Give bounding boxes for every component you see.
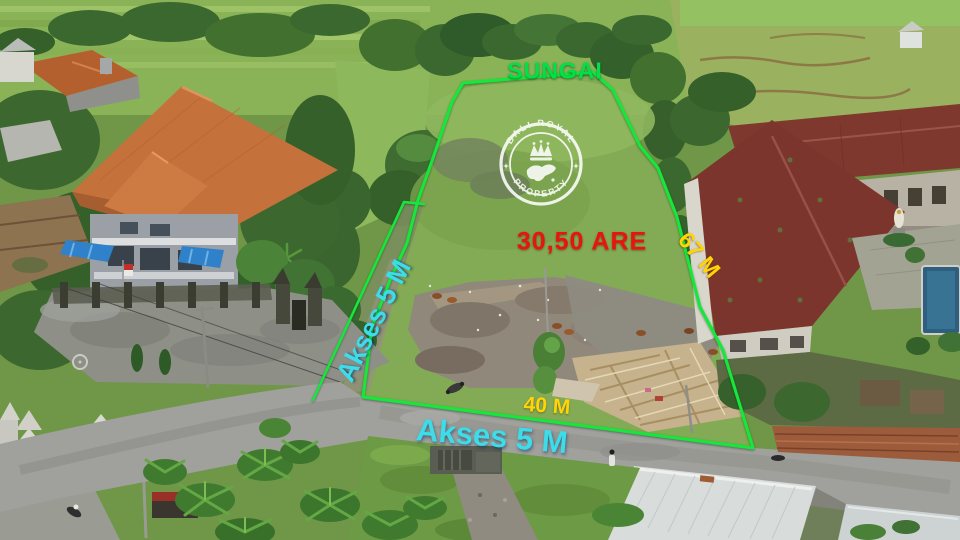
front-width-label: 40 M	[523, 394, 571, 418]
star-separator-icon	[503, 163, 509, 169]
cypress-tree	[131, 344, 143, 372]
parked-motorbike	[771, 455, 785, 461]
aerial-land-listing-photo: BALI ROYAL PROPERTY SUNGAI 30,50 ARE 67 …	[0, 0, 960, 540]
cypress-tree	[159, 349, 171, 375]
indonesian-flag	[124, 264, 133, 270]
pedestrian	[609, 450, 615, 467]
bali-island-icon	[527, 164, 556, 181]
crown-icon	[530, 140, 552, 160]
aerial-scene	[0, 0, 960, 540]
river-label: SUNGAI	[507, 60, 602, 83]
area-label: 30,50 ARE	[517, 230, 647, 255]
star-separator-icon	[573, 163, 579, 169]
watermark-logo: BALI ROYAL PROPERTY	[486, 109, 596, 219]
